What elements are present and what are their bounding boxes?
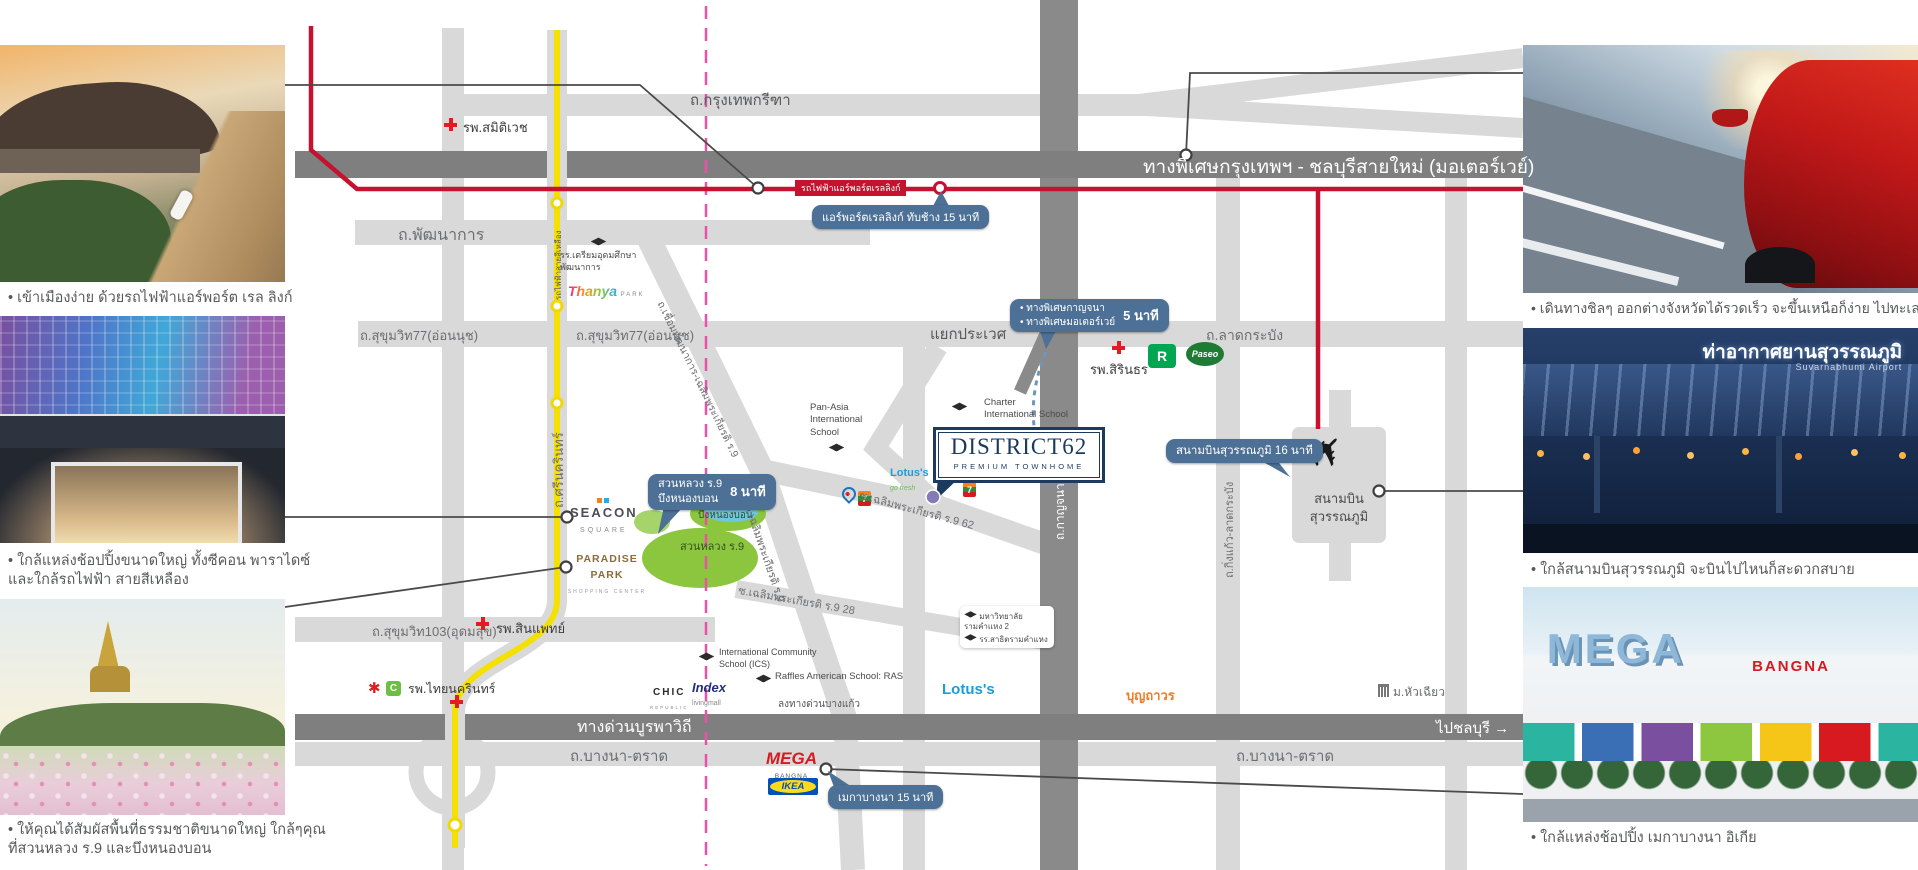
lotus-gofresh-logo: Lotus'sgo fresh	[890, 465, 929, 492]
caption-right-2: • ใกล้สนามบินสุวรรณภูมิ จะบินไปไหนก็สะดว…	[1531, 558, 1855, 581]
school-line1: รร.เตรียมอุดมศึกษา	[560, 250, 636, 260]
place-ics-school: International CommunitySchool (ICS)	[719, 647, 817, 670]
chic-sub: REPUBLIC	[650, 705, 689, 710]
place-triam-udom-school: รร.เตรียมอุดมศึกษาพัฒนาการ	[560, 250, 636, 273]
graduation-cap-icon	[965, 633, 975, 641]
robinson-logo: R	[1148, 344, 1176, 368]
note-bang-kaew-exit: ลงทางด่วนบางแก้ว	[778, 697, 860, 712]
graduation-cap-icon	[830, 442, 843, 452]
terminal-canopy	[1523, 364, 1918, 436]
hospital-cross-icon	[476, 617, 489, 630]
place-pan-asia-school: Pan-AsiaInternationalSchool	[810, 402, 890, 439]
caption-left-1: • เข้าเมืองง่าย ด้วยรถไฟฟ้าแอร์พอร์ต เรล…	[8, 286, 293, 309]
paradise-wordmark: PARADISE PARK	[576, 553, 637, 581]
road-label-bangna-trat-a: ถ.บางนา-ตราด	[570, 744, 668, 768]
airport-block	[1292, 390, 1386, 581]
panasia-line2: International	[810, 414, 862, 425]
arl-line-banner: รถไฟฟ้าแอร์พอร์ตเรลลิงก์	[795, 180, 906, 196]
road-label-motorway: ทางพิเศษกรุงเทพฯ - ชลบุรีสายใหม่ (มอเตอร…	[1143, 152, 1523, 182]
badge-expressway-5min: • ทางพิเศษกาญจนา• ทางพิเศษมอเตอร์เวย์ 5 …	[1010, 299, 1169, 332]
road-label-burapha: ทางด่วนบูรพาวิถี	[577, 715, 692, 740]
district62-logo-box: DISTRICT62 PREMIUM TOWNHOME	[933, 427, 1105, 483]
badge-parks-time: 8 นาที	[730, 481, 766, 502]
place-sirindhorn-hospital: รพ.สิรินธร	[1090, 359, 1148, 380]
place-suvarnabhumi-airport: สนามบินสุวรรณภูมิ	[1294, 490, 1384, 525]
panasia-line3: School	[810, 427, 839, 438]
badge-airport-16min: สนามบินสุวรรณภูมิ 16 นาที	[1166, 439, 1323, 463]
ram2-line2: รามคำแหง 2	[964, 622, 1009, 631]
paradise-sub: SHOPPING CENTER	[568, 589, 646, 595]
road-label-to-chonburi: ไปชลบุรี →	[1436, 716, 1509, 740]
seacon-square-word: SQUARE	[580, 527, 628, 534]
place-raffles-school: Raffles American School: RAS	[775, 671, 903, 682]
mega-roof-sign: MEGA	[1547, 625, 1685, 673]
hospital-cross-icon	[444, 118, 457, 131]
place-charter-school: CharterInternational School	[984, 397, 1068, 422]
badge-parks-line2: บึงหนองบอน	[658, 493, 718, 505]
pillar-2	[1776, 436, 1782, 513]
photo-seacon-square	[0, 316, 285, 543]
location-map-infographic: • เข้าเมืองง่าย ด้วยรถไฟฟ้าแอร์พอร์ต เรล…	[0, 0, 1918, 870]
seacon-square-blue	[604, 498, 609, 503]
ics-line1: International Community	[719, 647, 817, 657]
ikea-logo: IKEA	[768, 778, 818, 795]
chic-republic-logo: CHICREPUBLIC	[650, 684, 689, 713]
charter-line2: International School	[984, 409, 1068, 420]
airport-sign-en: Suvarnabhumi Airport	[1796, 362, 1903, 372]
caption-right-3: • ใกล้แหล่งช้อปปิ้ง เมกาบางนา อิเกีย	[1531, 826, 1757, 849]
rail-track	[125, 111, 285, 282]
road-label-bangna-trat-b: ถ.บางนา-ตราด	[1236, 744, 1334, 768]
badge-mega-15min: เมกาบางนา 15 นาที	[828, 785, 943, 809]
chic-wordmark: CHIC	[653, 687, 685, 698]
central-logo: ✱	[368, 679, 381, 697]
bangna-roof-sign: BANGNA	[1752, 658, 1830, 675]
paradise-park-logo: PARADISE PARK SHOPPING CENTER	[562, 550, 652, 597]
junction-label-prawet: แยกประเวศ	[930, 322, 1006, 346]
ics-line2: School (ICS)	[719, 659, 770, 669]
index-wordmark: Index	[692, 680, 726, 695]
place-ram2-card: มหาวิทยาลัย รามคำแหง 2 รร.สาธิตรามคำแหง	[960, 606, 1054, 648]
entrance-portal	[51, 462, 241, 543]
school-line2: พัฒนาการ	[560, 262, 601, 272]
index-livingmall-logo: Indexlivingmall	[692, 681, 726, 707]
seacon-square-orange	[597, 498, 602, 503]
place-samitivej-hospital: รพ.สมิติเวช	[463, 117, 528, 138]
panasia-line1: Pan-Asia	[810, 402, 849, 413]
mega-bangna-logo: MEGABANGNA	[766, 750, 817, 781]
tab-chang-station-dot	[935, 183, 946, 194]
photo-suvarnabhumi: ท่าอากาศยานสุวรรณภูมิ Suvarnabhumi Airpo…	[1523, 328, 1918, 553]
university-building-icon	[1378, 684, 1389, 697]
rama9-tower-spire	[97, 621, 119, 669]
storefront-banners	[1523, 723, 1918, 761]
project-name: DISTRICT62	[936, 434, 1102, 460]
project-tagline: PREMIUM TOWNHOME	[936, 462, 1102, 471]
caption-left-3b: ที่สวนหลวง ร.9 และบึงหนองบอน	[8, 837, 211, 860]
road-label-krungthep-k reetha: ถ.กรุงเทพกรีฑา	[690, 88, 791, 112]
glass-grid	[0, 316, 285, 418]
yellow-line-label: รถไฟฟ้าสายสีเหลือง	[552, 230, 565, 300]
ram2-line3: รร.สาธิตรามคำแหง	[979, 635, 1048, 644]
badge-parks-8min: สวนหลวง ร.9บึงหนองบอน 8 นาที	[648, 474, 776, 510]
thanya-park-logo: Thanya PARK	[568, 283, 645, 299]
lotus-gofresh-sub: go fresh	[890, 485, 915, 492]
hospital-cross-icon	[1112, 341, 1125, 354]
graduation-cap-icon	[953, 401, 966, 411]
badge-parks-line1: สวนหลวง ร.9	[658, 478, 722, 490]
lotus-logo: Lotus's	[942, 681, 995, 698]
photo-mega-bangna: MEGA BANGNA	[1523, 587, 1918, 822]
pillar-1	[1594, 436, 1600, 513]
facade-band	[0, 414, 285, 452]
graduation-cap-icon	[700, 651, 713, 661]
boonthavorn-logo: บุญถาวร	[1126, 685, 1175, 706]
terminal-lights	[1537, 450, 1544, 457]
road-label-sukhumvit77-a: ถ.สุขุมวิท77(อ่อนนุช)	[360, 325, 478, 346]
caption-right-1: • เดินทางชิลๆ ออกต่างจังหวัดได้รวดเร็ว จ…	[1531, 298, 1918, 320]
graduation-cap-icon	[592, 236, 605, 246]
road-label-srinagarindra: ถ.ศรีนครินทร์	[548, 432, 569, 508]
photo-airport-rail-link	[0, 45, 285, 282]
place-hua-chiew-university: ม.หัวเฉียว	[1393, 683, 1445, 702]
car-wheel	[1745, 247, 1815, 283]
graduation-cap-icon	[757, 673, 770, 683]
road-label-king-kaew: ถ.กิ่งแก้ว-ลาดกระบัง	[1220, 482, 1238, 578]
airport-road	[1523, 524, 1918, 553]
place-sinphaet-hospital: รพ.สินแพทย์	[496, 618, 565, 639]
lotus-wordmark: Lotus's	[890, 467, 929, 479]
seacon-square-logo: SEACON SQUARE	[570, 492, 638, 535]
airport-line1: สนามบิน	[1314, 491, 1364, 506]
thanya-park-word: PARK	[621, 292, 645, 298]
place-suan-luang-park: สวนหลวง ร.9	[680, 537, 744, 555]
road-label-lat-krabang: ถ.ลาดกระบัง	[1206, 325, 1283, 347]
mega-road	[1523, 799, 1918, 823]
index-sub: livingmall	[692, 700, 721, 707]
seven-eleven-logo: 7	[963, 482, 976, 497]
hospital-cross-icon	[450, 695, 463, 708]
road-label-pattanakan: ถ.พัฒนาการ	[398, 223, 484, 248]
photo-motorway-drive	[1523, 45, 1918, 293]
photo-suan-luang	[0, 599, 285, 815]
paseo-mall-logo: Paseo	[1186, 342, 1224, 366]
ram2-line1: มหาวิทยาลัย	[979, 612, 1023, 621]
ikea-wordmark: IKEA	[768, 778, 818, 795]
big-c-logo: C	[386, 681, 401, 696]
seacon-wordmark: SEACON	[570, 505, 638, 520]
flower-dots	[0, 750, 285, 815]
thanya-wordmark: Thanya	[568, 283, 617, 299]
mega-wordmark: MEGA	[766, 749, 817, 768]
graduation-cap-icon	[965, 610, 975, 618]
badge-exp-lines: • ทางพิเศษกาญจนา• ทางพิเศษมอเตอร์เวย์	[1020, 302, 1115, 329]
airport-line2: สุวรรณภูมิ	[1310, 509, 1368, 524]
caption-left-2b: และใกล้รถไฟฟ้า สายสีเหลือง	[8, 568, 189, 591]
badge-exp-line2: • ทางพิเศษมอเตอร์เวย์	[1020, 317, 1115, 328]
badge-parks-lines: สวนหลวง ร.9บึงหนองบอน	[658, 477, 722, 507]
charter-line1: Charter	[984, 397, 1016, 408]
rama9-tower-hall	[90, 666, 130, 692]
mega-trees	[1523, 761, 1918, 801]
badge-arl-tab-chang: แอร์พอร์ตเรลลิงก์ ทับช้าง 15 นาที	[812, 205, 989, 229]
badge-exp-time: 5 นาที	[1123, 305, 1159, 326]
badge-exp-line1: • ทางพิเศษกาญจนา	[1020, 303, 1105, 314]
